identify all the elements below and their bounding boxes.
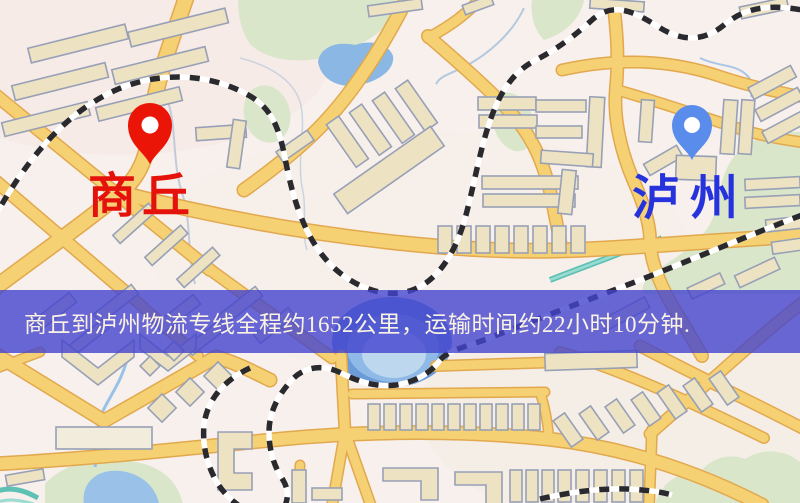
origin-pin-icon[interactable] [118,96,182,166]
destination-label: 泸州 [632,175,748,223]
destination-pin-icon[interactable] [664,100,720,162]
base-map-art [0,0,800,503]
route-info-text: 商丘到泸州物流专线全程约1652公里，运输时间约22小时10分钟. [24,305,690,339]
map-canvas[interactable]: 商丘到泸州物流专线全程约1652公里，运输时间约22小时10分钟. 商丘 泸州 [0,0,800,503]
route-info-banner: 商丘到泸州物流专线全程约1652公里，运输时间约22小时10分钟. [0,290,800,353]
origin-label: 商丘 [88,173,196,221]
